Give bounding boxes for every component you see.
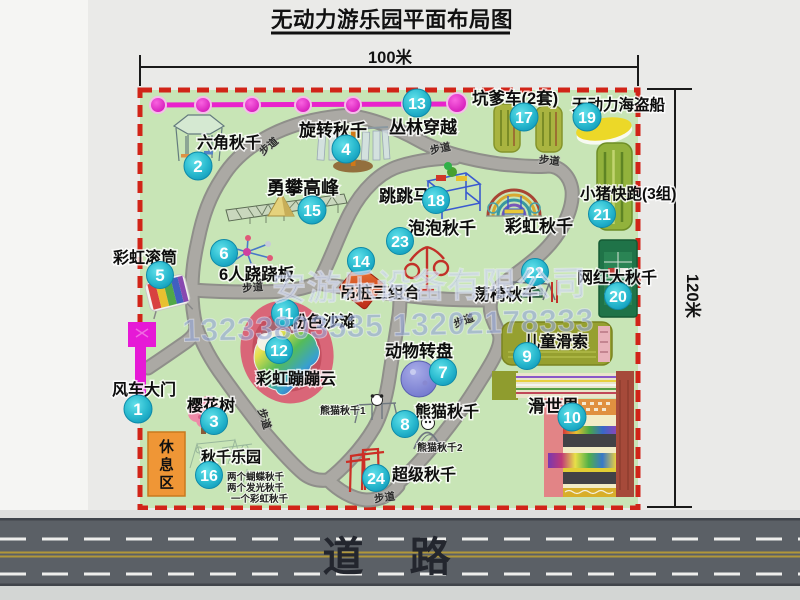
svg-text:19: 19 <box>578 110 596 127</box>
svg-text:六角秋千: 六角秋千 <box>197 133 261 152</box>
svg-text:熊猫秋千2: 熊猫秋千2 <box>417 441 463 454</box>
svg-text:120米: 120米 <box>683 274 703 319</box>
svg-text:6: 6 <box>219 244 228 263</box>
svg-text:9: 9 <box>522 347 531 366</box>
svg-text:超级秋千: 超级秋千 <box>391 465 456 484</box>
svg-text:彩虹秋千: 彩虹秋千 <box>504 216 573 236</box>
svg-text:步道: 步道 <box>538 153 561 168</box>
svg-text:23: 23 <box>391 234 409 251</box>
svg-text:15: 15 <box>303 203 321 220</box>
svg-text:2: 2 <box>193 157 202 176</box>
svg-text:路: 路 <box>410 534 452 580</box>
svg-text:动物转盘: 动物转盘 <box>385 341 453 361</box>
svg-text:熊猫秋千1: 熊猫秋千1 <box>320 404 366 417</box>
svg-text:1: 1 <box>133 400 142 419</box>
svg-text:安游乐设备有限公司: 安游乐设备有限公司 <box>272 265 588 308</box>
svg-text:无动力游乐园平面布局图: 无动力游乐园平面布局图 <box>271 7 513 32</box>
svg-text:泡泡秋千: 泡泡秋千 <box>408 218 476 238</box>
svg-text:坑爹车(2套): 坑爹车(2套) <box>472 88 558 108</box>
svg-text:丛林穿越: 丛林穿越 <box>389 117 458 137</box>
svg-text:两个发光秋千: 两个发光秋千 <box>227 482 285 494</box>
svg-text:勇攀高峰: 勇攀高峰 <box>267 177 340 198</box>
svg-text:5: 5 <box>155 266 164 285</box>
svg-text:16: 16 <box>200 468 218 485</box>
svg-text:21: 21 <box>593 207 611 224</box>
svg-text:8: 8 <box>400 415 409 434</box>
svg-text:熊猫秋千: 熊猫秋千 <box>415 402 479 421</box>
svg-text:13: 13 <box>408 96 426 113</box>
svg-text:10: 10 <box>563 410 581 427</box>
svg-text:道: 道 <box>323 534 364 580</box>
svg-text:3: 3 <box>209 412 218 431</box>
svg-text:息: 息 <box>159 456 174 474</box>
svg-text:7: 7 <box>438 363 447 382</box>
svg-text:24: 24 <box>367 471 385 488</box>
svg-text:步道: 步道 <box>242 280 265 295</box>
svg-text:休: 休 <box>158 438 174 456</box>
svg-text:4: 4 <box>341 140 351 159</box>
svg-text:18: 18 <box>427 193 445 210</box>
svg-text:20: 20 <box>609 289 627 306</box>
svg-text:一个彩虹秋千: 一个彩虹秋千 <box>231 493 289 505</box>
svg-text:100米: 100米 <box>368 47 413 67</box>
svg-text:区: 区 <box>159 475 174 492</box>
svg-text:旋转秋千: 旋转秋千 <box>298 120 367 140</box>
svg-text:小猪快跑(3组): 小猪快跑(3组) <box>580 184 676 203</box>
svg-text:彩虹蹦蹦云: 彩虹蹦蹦云 <box>255 369 336 388</box>
svg-text:两个蝴蝶秋千: 两个蝴蝶秋千 <box>227 471 285 483</box>
svg-text:17: 17 <box>515 110 533 127</box>
